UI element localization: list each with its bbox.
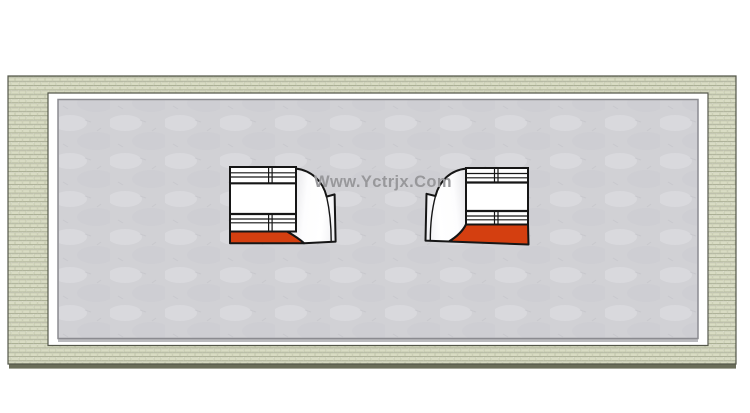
floor-texture — [59, 101, 697, 338]
concrete-floor — [58, 100, 698, 343]
skatepark-3d-render: Www.Yctrjx.Com — [0, 0, 750, 413]
watermark: Www.Yctrjx.Com — [314, 173, 452, 191]
